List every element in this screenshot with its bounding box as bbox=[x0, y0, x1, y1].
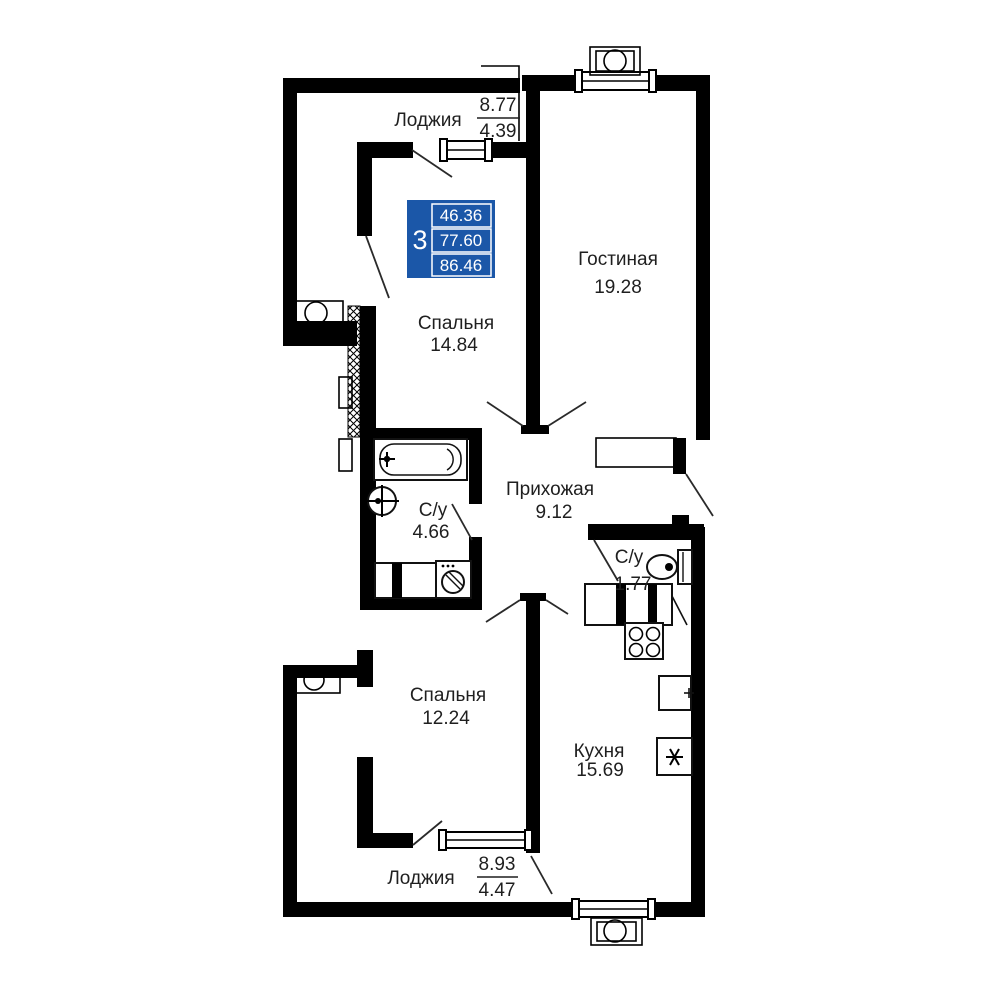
window-icon bbox=[440, 139, 492, 161]
room-area-bathroom: 4.66 bbox=[413, 522, 450, 543]
door-swing-icon bbox=[366, 236, 389, 298]
room-label-wc: С/у bbox=[615, 547, 644, 568]
loggia-top-area-coef: 4.39 bbox=[480, 121, 517, 142]
door-swing-icon bbox=[546, 600, 568, 614]
kitchen-sink-icon bbox=[659, 676, 694, 710]
fridge-icon bbox=[657, 738, 692, 775]
usable-area-value: 77.60 bbox=[440, 231, 483, 250]
room-area-bedroom2: 12.24 bbox=[422, 708, 470, 729]
room-label-kitchen: Кухня bbox=[574, 741, 625, 762]
floor-plan-drawing: Гостиная 19.28 Спальня 14.84 Прихожая 9.… bbox=[0, 0, 1000, 1000]
room-area-living: 19.28 bbox=[594, 277, 642, 298]
door-swing-icon bbox=[531, 856, 552, 894]
room-label-bathroom: С/у bbox=[419, 500, 448, 521]
bathtub-icon bbox=[374, 439, 467, 480]
room-area-hallway: 9.12 bbox=[536, 502, 573, 523]
room-area-kitchen: 15.69 bbox=[576, 760, 624, 781]
niche bbox=[596, 438, 676, 467]
window-icon bbox=[572, 899, 655, 919]
toilet-icon bbox=[647, 550, 692, 584]
total-area-value: 86.46 bbox=[440, 256, 483, 275]
room-label-hallway: Прихожая bbox=[506, 479, 594, 500]
floor-plan: Гостиная 19.28 Спальня 14.84 Прихожая 9.… bbox=[0, 0, 1000, 1000]
door-swing-icon bbox=[487, 402, 523, 426]
room-label-loggia-top: Лоджия bbox=[394, 110, 461, 131]
door-swing-icon bbox=[486, 600, 520, 622]
loggia-bottom-area-total: 8.93 bbox=[479, 854, 516, 875]
ac-unit-icon bbox=[591, 918, 642, 945]
room-label-bedroom2: Спальня bbox=[410, 685, 486, 706]
room-label-loggia-bottom: Лоджия bbox=[387, 868, 454, 889]
window-icon bbox=[439, 830, 532, 850]
room-area-wc: 1.77 bbox=[615, 574, 652, 595]
ac-unit-icon bbox=[590, 47, 640, 75]
rooms-count: 3 bbox=[412, 225, 427, 255]
window-icon bbox=[575, 70, 656, 92]
loggia-top-area-total: 8.77 bbox=[480, 95, 517, 116]
apartment-info-box: 3 46.36 77.60 86.46 bbox=[407, 200, 495, 278]
living-area-value: 46.36 bbox=[440, 206, 483, 225]
door-swing-icon bbox=[452, 504, 472, 540]
facade-pilaster bbox=[339, 439, 352, 471]
walls bbox=[283, 66, 710, 917]
room-area-bedroom1: 14.84 bbox=[430, 335, 478, 356]
hatched-wall bbox=[348, 306, 360, 437]
door-swing-icon bbox=[686, 474, 713, 516]
room-label-bedroom1: Спальня bbox=[418, 313, 494, 334]
stove-icon bbox=[625, 623, 663, 659]
washing-machine-icon bbox=[436, 561, 471, 598]
room-label-living: Гостиная bbox=[578, 249, 658, 270]
bathroom-counter bbox=[375, 563, 437, 598]
door-swing-icon bbox=[413, 821, 442, 845]
door-swing-icon bbox=[548, 402, 586, 426]
loggia-bottom-area-coef: 4.47 bbox=[479, 880, 516, 901]
